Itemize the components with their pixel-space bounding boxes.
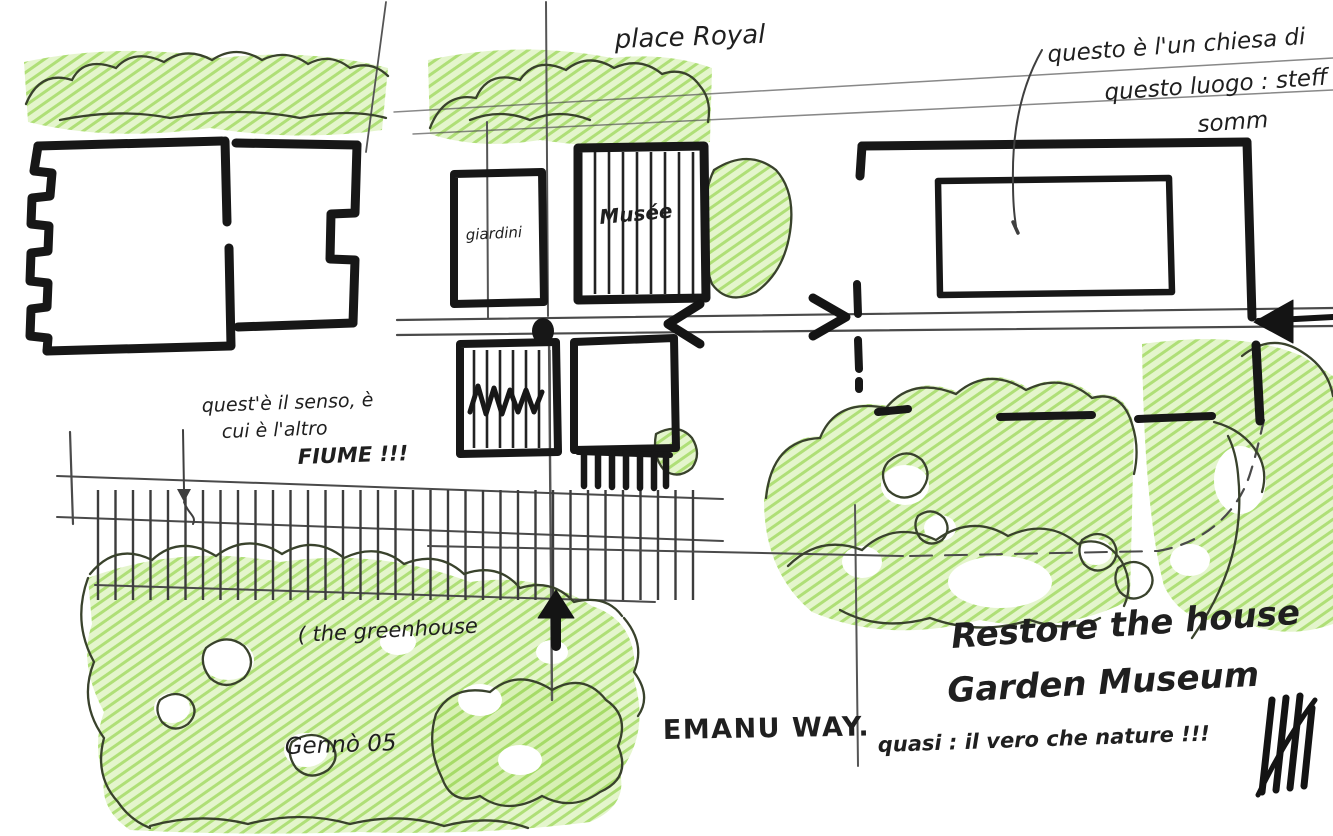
label-place-royal: place Royal <box>613 20 766 55</box>
sketch-canvas: place Royal questo è l'un chiesa di ques… <box>0 0 1333 836</box>
label-left-note-1: quest'è il senso, è <box>201 389 373 417</box>
label-top-right-3: somm <box>1197 107 1270 138</box>
street-arrow-far-right <box>1254 300 1293 343</box>
building-left-compound <box>30 141 357 351</box>
label-small-square: giardini <box>465 223 523 244</box>
sketch-page: place Royal questo è l'un chiesa di ques… <box>0 0 1333 836</box>
label-top-right-2: questo luogo : steff <box>1104 64 1331 106</box>
signature-scribble <box>1258 696 1315 795</box>
label-big-note-2: Garden Museum <box>946 655 1260 711</box>
street-ink-blob <box>532 318 554 344</box>
label-bottom-right-note: quasi : il vero che nature !!! <box>877 721 1210 757</box>
building-hatched-square-lower <box>460 342 558 454</box>
label-fiume: FIUME !!! <box>297 441 408 469</box>
building-inner-court <box>938 178 1172 295</box>
label-way: EMANU WAY. <box>663 711 871 746</box>
label-date: Gennò 05 <box>284 730 397 760</box>
label-left-note-2: cui è l'altro <box>221 417 328 443</box>
